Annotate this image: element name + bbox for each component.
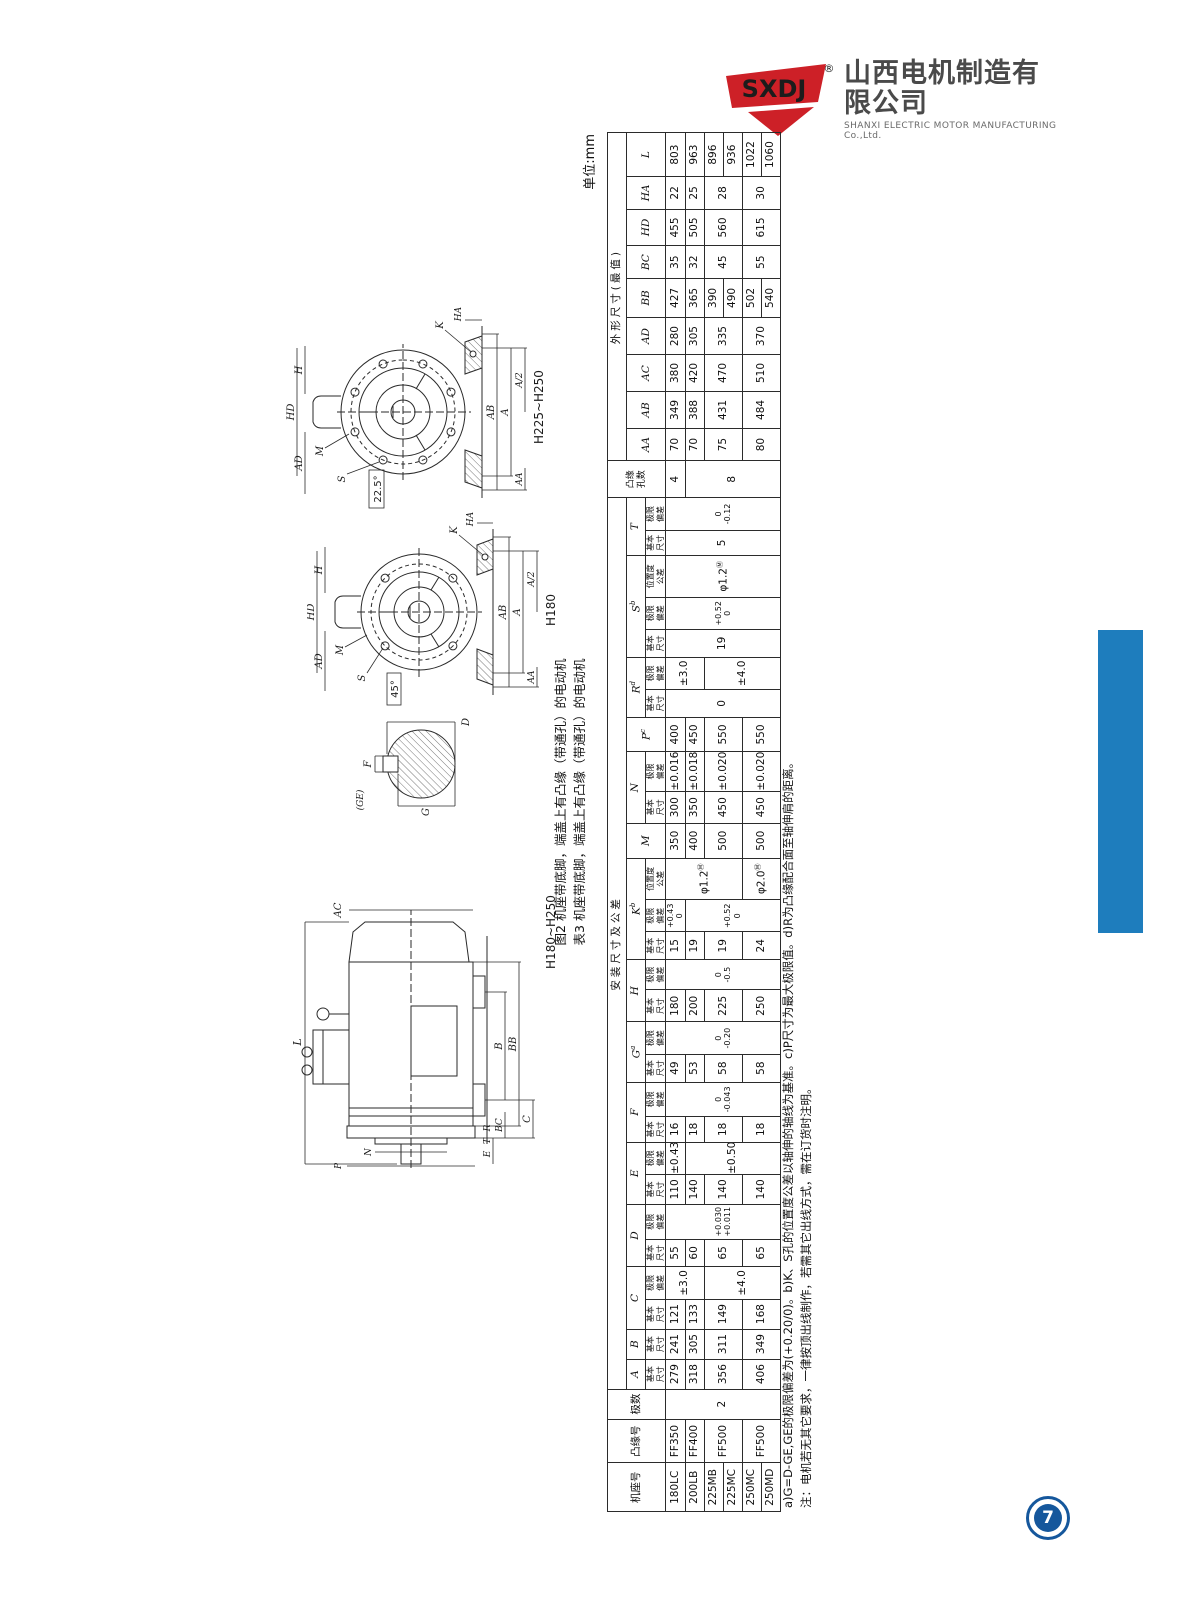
column-header-cell: 基本尺寸 [646,1117,666,1142]
data-cell: 305 [685,1329,704,1359]
data-cell: 70 [685,428,704,460]
column-header-cell: 基本尺寸 [646,530,666,555]
data-cell: 335 [704,318,742,355]
table-3-wrapper: 机座号凸缘号极数安装尺寸及公差凸缘孔数外形尺寸(最值)ABCDEFGaHKbMN… [607,130,781,1512]
dim-label-AD-4: AD [314,653,325,669]
column-header-cell: A [627,1359,646,1389]
data-cell: 388 [685,391,704,428]
data-cell: 280 [666,318,685,355]
spec-table: 机座号凸缘号极数安装尺寸及公差凸缘孔数外形尺寸(最值)ABCDEFGaHKbMN… [607,132,781,1512]
data-cell: 350 [666,823,685,858]
data-cell: 35 [666,246,685,278]
data-cell: φ1.2Ⓜ [666,556,780,598]
dim-label-HA-8: HA [454,306,464,322]
column-header-cell: 基本尺寸 [646,1359,666,1389]
column-header-cell: 极限偏差 [646,900,666,932]
data-cell: 490 [723,278,742,317]
end-view-4hole-geometry [335,529,493,695]
data-cell: 60 [685,1239,704,1267]
data-cell: 19 [704,932,742,960]
column-header-cell: 极限偏差 [646,498,666,530]
column-header-cell: 极限偏差 [646,960,666,990]
data-cell: 0-0.20 [666,1022,780,1054]
column-header-cell: AB [627,391,666,428]
data-cell: 58 [704,1054,742,1082]
data-cell: 349 [742,1329,780,1359]
data-cell: 110 [666,1174,685,1204]
data-cell: 2 [666,1389,780,1419]
data-cell: FF400 [685,1419,704,1463]
column-header-cell: 极限偏差 [646,597,666,629]
data-cell: 450 [685,717,704,752]
dim-label-P: P [334,1162,344,1170]
end-view-4hole-drawing: HD H AD M S 45° K HA AB A A/2 AA H180 [307,512,559,707]
logo-brand-text: SXDJ [742,75,807,103]
column-header-cell: 基本尺寸 [646,1174,666,1204]
column-header-cell: 极限偏差 [646,657,666,689]
dim-label-F: F [363,759,374,768]
data-cell: 0-0.043 [666,1082,780,1117]
column-header-cell: 安装尺寸及公差 [608,498,627,1389]
column-header-cell: 基本尺寸 [646,629,666,657]
column-header-cell: C [627,1267,646,1329]
dim-label-D: D [461,718,472,727]
table-header-row: 机座号凸缘号极数安装尺寸及公差凸缘孔数外形尺寸(最值) [608,133,627,1512]
column-header-cell: 极限偏差 [646,1022,666,1054]
data-cell: 500 [742,823,780,858]
dim-label-BC: BC [495,1118,505,1133]
figure-2-caption: 图2 机座带底脚，端盖上有凸缘（带通孔）的电动机 [551,492,570,1112]
dim-label-M-8: M [315,445,326,457]
data-cell: FF500 [704,1419,742,1463]
column-header-cell: BC [627,246,666,278]
data-cell: 318 [685,1359,704,1389]
dim-label-AB-8: AB [486,405,497,421]
side-view-motor-drawing: L AC E T R N P BC B BB C H180~H250 [293,872,561,1172]
data-cell: 25 [685,177,704,209]
data-cell: 30 [742,177,780,209]
table-notes: a)G=D-GE,GE的极限偏差为(+0.20/0)。b)K、S孔的位置度公差以… [779,608,816,1508]
data-cell: 18 [704,1117,742,1142]
data-cell: 24 [742,932,780,960]
dim-label-A-4: A [512,608,523,616]
column-header-cell: HA [627,177,666,209]
data-cell: 370 [742,318,780,355]
drawing-side-view: L AC E T R N P BC B BB C H180~H250 [293,872,565,1172]
spec-table-body: 机座号凸缘号极数安装尺寸及公差凸缘孔数外形尺寸(最值)ABCDEFGaHKbMN… [608,133,781,1512]
data-cell: ±0.018 [685,752,704,791]
data-cell: 121 [666,1299,685,1329]
data-cell: 550 [742,717,780,752]
shaft-section-geometry [383,730,455,798]
dim-label-L: L [293,1038,304,1046]
logo-text-block: 山西电机制造有限公司 SHANXI ELECTRIC MOTOR MANUFAC… [844,59,1067,141]
data-cell: ±0.016 [666,752,685,791]
data-cell: FF350 [666,1419,685,1463]
data-cell: 400 [685,823,704,858]
drawing-shaft-section: F (GE) G D [347,712,479,822]
data-cell: 0 [666,689,780,717]
column-header-cell: 机座号 [608,1463,666,1512]
column-header-cell: 极数 [608,1389,666,1419]
side-view-geometry [302,910,487,1168]
data-cell: 80 [742,428,780,460]
table-row: 200LBFF40031830513360140±0.50185320019+0… [685,133,704,1512]
data-cell: 484 [742,391,780,428]
dim-label-HD-8: HD [286,404,297,422]
data-cell: 311 [704,1329,742,1359]
dim-label-A2-4: A/2 [527,571,537,588]
data-cell: 18 [685,1117,704,1142]
data-cell: 70 [666,428,685,460]
data-cell: 510 [742,355,780,392]
data-cell: 15 [666,932,685,960]
data-cell: 550 [704,717,742,752]
column-header-cell: AC [627,355,666,392]
registered-mark-icon: ® [824,62,835,75]
data-cell: ±0.020 [704,752,742,791]
rotated-content: L AC E T R N P BC B BB C H180~H250 [285,130,815,1512]
end-view-8hole-geometry [313,326,482,498]
data-cell: 180LC [666,1463,685,1512]
data-cell: 149 [704,1299,742,1329]
column-header-cell: N [627,752,646,824]
column-header-cell: Sb [627,556,646,658]
section-side-tab [1098,630,1143,933]
drawing-end-view-h225-h250: HD H AD M S 22.5° K HA AB A A/2 AA H225~… [285,302,551,512]
column-header-cell: 基本尺寸 [646,791,666,823]
data-cell: +0.520 [666,597,780,629]
dim-label-S-4: S [357,674,368,681]
data-cell: 19 [685,932,704,960]
data-cell: ±4.0 [704,1267,780,1299]
dim-label-B: B [494,1042,505,1050]
data-cell: ±4.0 [704,657,780,689]
column-header-cell: H [627,960,646,1022]
column-header-cell: Pc [627,717,666,752]
company-name-cn: 山西电机制造有限公司 [844,59,1067,118]
angle-label-45: 45° [390,680,401,698]
data-cell: 380 [666,355,685,392]
data-cell: +0.030+0.011 [666,1204,780,1239]
drawing-end-view-h180: HD H AD M S 45° K HA AB A A/2 AA H180 [307,512,563,707]
column-header-cell: 基本尺寸 [646,1239,666,1267]
dim-label-K-4: K [449,526,460,535]
data-cell: 455 [666,209,685,246]
column-header-cell: T [627,498,646,556]
catalog-page: SXDJ ® 山西电机制造有限公司 SHANXI ELECTRIC MOTOR … [0,0,1200,1617]
data-cell: 241 [666,1329,685,1359]
data-cell: 350 [685,791,704,823]
dim-label-G: G [421,808,432,816]
data-cell: 58 [742,1054,780,1082]
data-cell: 250 [742,990,780,1022]
data-cell: 16 [666,1117,685,1142]
dim-label-R: R [483,1124,493,1132]
frame-range-label-h225-h250: H225~H250 [532,370,546,444]
dim-label-S-8: S [337,475,348,482]
table-row: 225MBFF500356311149±4.065140185822519500… [704,133,723,1512]
data-cell: 0-0.5 [666,960,780,990]
sxdj-logo-icon: SXDJ ® [722,60,834,140]
data-cell: 65 [704,1239,742,1267]
dim-label-HD-4: HD [307,604,317,622]
page-number-badge: 7 [1026,1496,1070,1540]
data-cell: 140 [704,1174,742,1204]
table-row: 180LCFF3502279241121±3.055+0.030+0.01111… [666,133,685,1512]
company-name-en: SHANXI ELECTRIC MOTOR MANUFACTURING Co.,… [844,121,1067,141]
data-cell: 200 [685,990,704,1022]
column-header-cell: 极限偏差 [646,1267,666,1299]
data-cell: 200LB [685,1463,704,1512]
data-cell: 250MC [742,1463,761,1512]
data-cell: 431 [704,391,742,428]
dim-label-AC: AC [333,902,344,918]
page-number: 7 [1034,1504,1062,1532]
data-cell: 540 [761,278,780,317]
data-cell: ±0.020 [742,752,780,791]
column-header-cell: 基本尺寸 [646,932,666,960]
data-cell: FF500 [742,1419,780,1463]
data-cell: 406 [742,1359,780,1389]
data-cell: 75 [704,428,742,460]
logo-mark: SXDJ ® [722,60,834,140]
dim-label-H-8: H [294,365,305,375]
data-cell: 500 [704,823,742,858]
data-cell: 22 [666,177,685,209]
column-header-cell: 位置度公差 [646,556,666,598]
column-header-cell: 基本尺寸 [646,990,666,1022]
table-row: 250MCFF50040634916865140185825024φ2.0Ⓜ50… [742,133,761,1512]
angle-label-22-5: 22.5° [373,475,384,502]
data-cell: 420 [685,355,704,392]
data-cell: 427 [666,278,685,317]
data-cell: 53 [685,1054,704,1082]
data-cell: 279 [666,1359,685,1389]
note-line-1: a)G=D-GE,GE的极限偏差为(+0.20/0)。b)K、S孔的位置度公差以… [779,608,797,1508]
column-header-cell: B [627,1329,646,1359]
note-line-2: 注：电机若无其它要求，一律按顶出线制作，若需其它出线方式，需在订货时注明。 [797,608,815,1508]
column-header-cell: 极限偏差 [646,1142,666,1174]
column-header-cell: F [627,1082,646,1142]
column-header-cell: 位置度公差 [646,858,666,900]
data-cell: 28 [704,177,742,209]
dim-label-BB: BB [508,1037,519,1053]
data-cell: ±0.43 [666,1142,685,1174]
column-header-cell: HD [627,209,666,246]
data-cell: 502 [742,278,761,317]
column-header-cell: M [627,823,666,858]
dim-label-GE: (GE) [355,789,366,810]
data-cell: 32 [685,246,704,278]
column-header-cell: 基本尺寸 [646,689,666,717]
shaft-section-drawing: F (GE) G D [347,712,475,822]
data-cell: 450 [742,791,780,823]
data-cell: 65 [742,1239,780,1267]
data-cell: 300 [666,791,685,823]
dim-label-T: T [483,1137,493,1144]
data-cell: ±3.0 [666,657,704,689]
dim-label-AA-4: AA [527,670,537,684]
dim-label-AB-4: AB [498,605,509,621]
data-cell: +0.430 [666,900,685,932]
data-cell: φ1.2Ⓜ [666,858,742,900]
column-header-cell: D [627,1204,646,1266]
dim-label-A-8: A [500,408,511,416]
data-cell: 356 [704,1359,742,1389]
column-header-cell: 外形尺寸(最值) [608,133,627,461]
dim-label-AA-8: AA [515,472,525,486]
column-header-cell: 极限偏差 [646,1204,666,1239]
data-cell: 505 [685,209,704,246]
data-cell: 365 [685,278,704,317]
data-cell: 133 [685,1299,704,1329]
data-cell: 1060 [761,133,780,177]
column-header-cell: 极限偏差 [646,752,666,791]
data-cell: 936 [723,133,742,177]
dim-label-N: N [364,1147,374,1157]
column-header-cell: 基本尺寸 [646,1329,666,1359]
data-cell: 225MC [723,1463,742,1512]
column-header-cell: Ga [627,1022,646,1082]
data-cell: 615 [742,209,780,246]
data-cell: 140 [742,1174,780,1204]
dim-label-C: C [522,1115,533,1123]
figure-2-drawings: L AC E T R N P BC B BB C H180~H250 [285,130,585,1512]
dim-label-HA-4: HA [466,512,476,527]
unit-label: 单位:mm [579,134,598,312]
data-cell: 470 [704,355,742,392]
data-cell: 8 [685,461,780,498]
captions: 图2 机座带底脚，端盖上有凸缘（带通孔）的电动机 表3 机座带底脚，端盖上有凸缘… [551,492,590,1112]
column-header-cell: AD [627,318,666,355]
data-cell: 18 [742,1117,780,1142]
data-cell: 250MD [761,1463,780,1512]
data-cell: ±3.0 [666,1267,704,1299]
data-cell: 450 [704,791,742,823]
data-cell: 803 [666,133,685,177]
data-cell: 896 [704,133,723,177]
column-header-cell: Kb [627,858,646,960]
data-cell: 400 [666,717,685,752]
table-3-caption: 表3 机座带底脚，端盖上有凸缘（带通孔）的电动机 [570,492,589,1112]
data-cell: 305 [685,318,704,355]
data-cell: 560 [704,209,742,246]
dim-label-E: E [483,1150,493,1158]
data-cell: 390 [704,278,723,317]
data-cell: 963 [685,133,704,177]
end-view-8hole-drawing: HD H AD M S 22.5° K HA AB A A/2 AA H225~… [285,302,547,512]
data-cell: 225 [704,990,742,1022]
dim-label-H-4: H [314,565,325,575]
column-header-cell: E [627,1142,646,1204]
column-header-cell: 凸缘号 [608,1419,666,1463]
data-cell: 55 [666,1239,685,1267]
column-header-cell: Rd [627,657,646,717]
data-cell: ±0.50 [685,1142,780,1174]
column-header-cell: 基本尺寸 [646,1299,666,1329]
data-cell: 45 [704,246,742,278]
data-cell: 0-0.12 [666,498,780,530]
data-cell: 5 [666,530,780,555]
dim-label-M-4: M [335,644,346,656]
column-header-cell: 极限偏差 [646,1082,666,1117]
data-cell: 4 [666,461,685,498]
column-header-cell: BB [627,278,666,317]
data-cell: 55 [742,246,780,278]
data-cell: 168 [742,1299,780,1329]
column-header-cell: 凸缘孔数 [608,461,666,498]
data-cell: +0.520 [685,900,780,932]
column-header-cell: 基本尺寸 [646,1054,666,1082]
dim-label-A2-8: A/2 [515,372,525,389]
dim-label-AD-8: AD [294,455,305,471]
data-cell: φ2.0Ⓜ [742,858,780,900]
data-cell: 225MB [704,1463,723,1512]
data-cell: 140 [685,1174,704,1204]
table-header-row: ABCDEFGaHKbMNPcRdSbTAAABACADBBBCHDHAL [627,133,646,1512]
column-header-cell: L [627,133,666,177]
data-cell: 180 [666,990,685,1022]
column-header-cell: AA [627,428,666,460]
data-cell: 49 [666,1054,685,1082]
data-cell: 1022 [742,133,761,177]
dim-label-K-8: K [435,321,446,330]
data-cell: 349 [666,391,685,428]
data-cell: 19 [666,629,780,657]
